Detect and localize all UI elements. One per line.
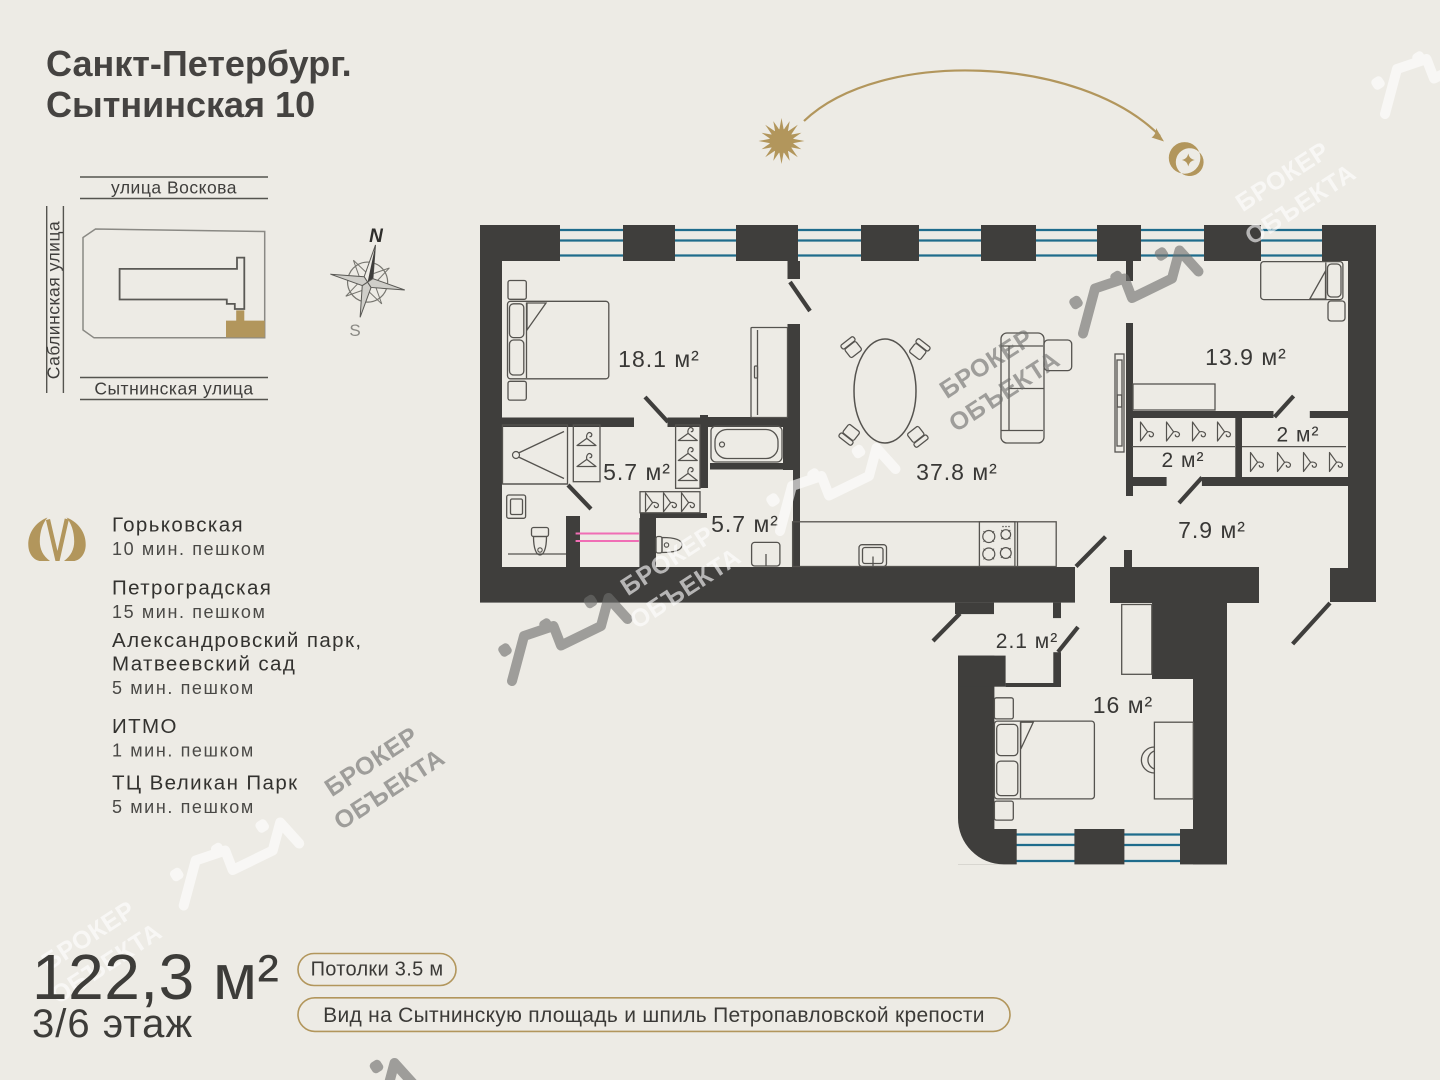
svg-text:5 мин. пешком: 5 мин. пешком: [112, 797, 255, 817]
svg-text:2 м²: 2 м²: [1162, 449, 1205, 472]
svg-text:Потолки 3.5 м: Потолки 3.5 м: [311, 959, 444, 981]
svg-text:10 мин. пешком: 10 мин. пешком: [112, 539, 266, 559]
svg-text:13.9 м²: 13.9 м²: [1205, 344, 1287, 370]
svg-text:7.9 м²: 7.9 м²: [1178, 517, 1246, 543]
svg-text:S: S: [349, 321, 360, 340]
svg-text:улица Воскова: улица Воскова: [111, 178, 237, 198]
svg-text:5 мин. пешком: 5 мин. пешком: [112, 678, 255, 698]
svg-text:5.7 м²: 5.7 м²: [711, 511, 779, 537]
svg-text:2 м²: 2 м²: [1277, 424, 1320, 447]
svg-text:1 мин. пешком: 1 мин. пешком: [112, 741, 255, 761]
svg-text:Петроградская: Петроградская: [112, 577, 272, 600]
svg-text:Вид на Сытнинскую площадь и шп: Вид на Сытнинскую площадь и шпиль Петроп…: [323, 1004, 985, 1027]
svg-text:2.1 м²: 2.1 м²: [996, 630, 1058, 653]
svg-text:Александровский парк,: Александровский парк,: [112, 629, 362, 652]
svg-text:ТЦ Великан Парк: ТЦ Великан Парк: [112, 772, 299, 795]
svg-text:Сытнинская 10: Сытнинская 10: [46, 84, 315, 125]
svg-text:ИТМО: ИТМО: [112, 715, 178, 738]
svg-text:Сытнинская улица: Сытнинская улица: [94, 379, 253, 399]
svg-text:15 мин. пешком: 15 мин. пешком: [112, 602, 266, 622]
svg-text:5.7 м²: 5.7 м²: [603, 459, 671, 485]
svg-text:Матвеевский сад: Матвеевский сад: [112, 653, 296, 676]
svg-text:3/6 этаж: 3/6 этаж: [32, 1002, 193, 1046]
svg-text:18.1 м²: 18.1 м²: [618, 346, 700, 372]
svg-text:N: N: [369, 226, 384, 247]
svg-text:Горьковская: Горьковская: [112, 514, 244, 537]
svg-text:16 м²: 16 м²: [1093, 692, 1153, 718]
svg-text:Санкт-Петербург.: Санкт-Петербург.: [46, 43, 352, 84]
svg-text:Саблинская улица: Саблинская улица: [44, 221, 64, 379]
svg-text:37.8 м²: 37.8 м²: [916, 459, 998, 485]
